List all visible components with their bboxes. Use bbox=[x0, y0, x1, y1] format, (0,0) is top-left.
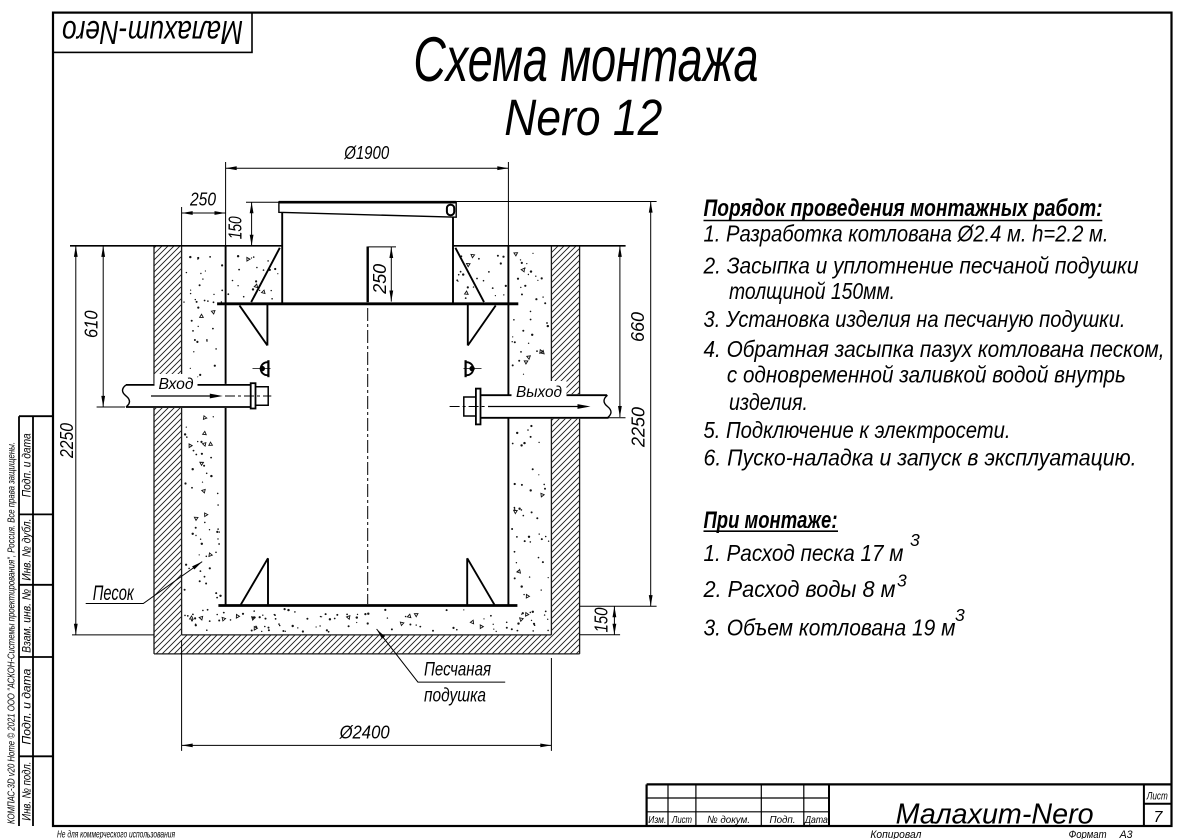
svg-text:Песчаная: Песчаная bbox=[424, 659, 491, 681]
svg-text:Подп. и дата: Подп. и дата bbox=[19, 668, 33, 744]
svg-text:5. Подключение к электросети.: 5. Подключение к электросети. bbox=[704, 417, 1011, 443]
svg-text:Лист: Лист bbox=[671, 814, 692, 826]
svg-text:610: 610 bbox=[81, 310, 102, 338]
svg-text:Малахит-Nero: Малахит-Nero bbox=[62, 14, 243, 51]
svg-text:Дата: Дата bbox=[804, 814, 828, 826]
svg-text:КОМПАС-3D v20 Home © 2021 ООО: КОМПАС-3D v20 Home © 2021 ООО "АСКОН-Сис… bbox=[7, 442, 18, 824]
svg-text:250: 250 bbox=[189, 189, 216, 210]
svg-text:250: 250 bbox=[369, 263, 390, 295]
svg-text:Подп. и дата: Подп. и дата bbox=[19, 433, 33, 497]
svg-text:660: 660 bbox=[627, 311, 648, 342]
svg-text:изделия.: изделия. bbox=[729, 389, 808, 415]
svg-text:Ø1900: Ø1900 bbox=[343, 142, 389, 163]
svg-text:7: 7 bbox=[1154, 809, 1164, 826]
svg-text:подушка: подушка bbox=[424, 685, 486, 707]
svg-text:6. Пуско-наладка и запуск в эк: 6. Пуско-наладка и запуск в эксплуатацию… bbox=[704, 445, 1137, 471]
svg-text:3: 3 bbox=[910, 530, 920, 550]
svg-text:Взам. инв. №: Взам. инв. № bbox=[19, 589, 33, 653]
svg-text:Вход: Вход bbox=[159, 376, 194, 393]
svg-text:Инв. № подл.: Инв. № подл. bbox=[19, 762, 33, 821]
svg-text:2250: 2250 bbox=[628, 406, 649, 448]
svg-text:Схема монтажа: Схема монтажа bbox=[413, 25, 758, 95]
svg-text:№ докум.: № докум. bbox=[707, 814, 750, 826]
svg-text:3: 3 bbox=[955, 605, 965, 625]
svg-text:Ø2400: Ø2400 bbox=[339, 722, 391, 743]
svg-text:При монтаже:: При монтаже: bbox=[704, 507, 838, 534]
svg-text:Формат: Формат bbox=[1069, 829, 1107, 839]
svg-text:2. Засыпка и уплотнение песчан: 2. Засыпка и уплотнение песчаной подушки bbox=[703, 253, 1139, 279]
svg-text:1. Расход песка 17 м: 1. Расход песка 17 м bbox=[704, 540, 904, 566]
svg-text:Не для коммерческого использов: Не для коммерческого использования bbox=[57, 829, 175, 839]
svg-text:2. Расход воды 8 м: 2. Расход воды 8 м bbox=[703, 576, 896, 602]
svg-text:Выход: Выход bbox=[516, 384, 562, 401]
svg-text:Подп.: Подп. bbox=[770, 814, 796, 826]
svg-text:2250: 2250 bbox=[56, 422, 77, 458]
svg-text:A3: A3 bbox=[1119, 829, 1134, 839]
svg-text:3. Объем котлована 19 м: 3. Объем котлована 19 м bbox=[704, 615, 956, 641]
svg-text:Копировал: Копировал bbox=[870, 829, 921, 839]
svg-text:1. Разработка котлована Ø2.4 м: 1. Разработка котлована Ø2.4 м. h=2.2 м. bbox=[704, 221, 1109, 247]
svg-text:Инв. № дубл.: Инв. № дубл. bbox=[19, 519, 33, 581]
svg-text:3: 3 bbox=[897, 571, 907, 591]
svg-text:Изм.: Изм. bbox=[648, 814, 666, 826]
svg-text:Лист: Лист bbox=[1146, 791, 1168, 803]
svg-text:150: 150 bbox=[591, 607, 612, 633]
svg-text:с одновременной заливкой водой: с одновременной заливкой водой внутрь bbox=[727, 361, 1126, 387]
svg-text:Nero 12: Nero 12 bbox=[504, 89, 662, 146]
svg-text:4. Обратная засыпка пазух котл: 4. Обратная засыпка пазух котлована песк… bbox=[704, 336, 1165, 362]
svg-text:толщиной 150мм.: толщиной 150мм. bbox=[729, 278, 895, 304]
svg-text:Порядок проведения монтажных р: Порядок проведения монтажных работ: bbox=[704, 195, 1103, 222]
svg-text:Песок: Песок bbox=[93, 582, 135, 605]
svg-text:Малахит-Nero: Малахит-Nero bbox=[896, 799, 1094, 831]
svg-text:3. Установка изделия на песчан: 3. Установка изделия на песчаную подушки… bbox=[704, 306, 1126, 332]
svg-text:150: 150 bbox=[225, 216, 246, 240]
